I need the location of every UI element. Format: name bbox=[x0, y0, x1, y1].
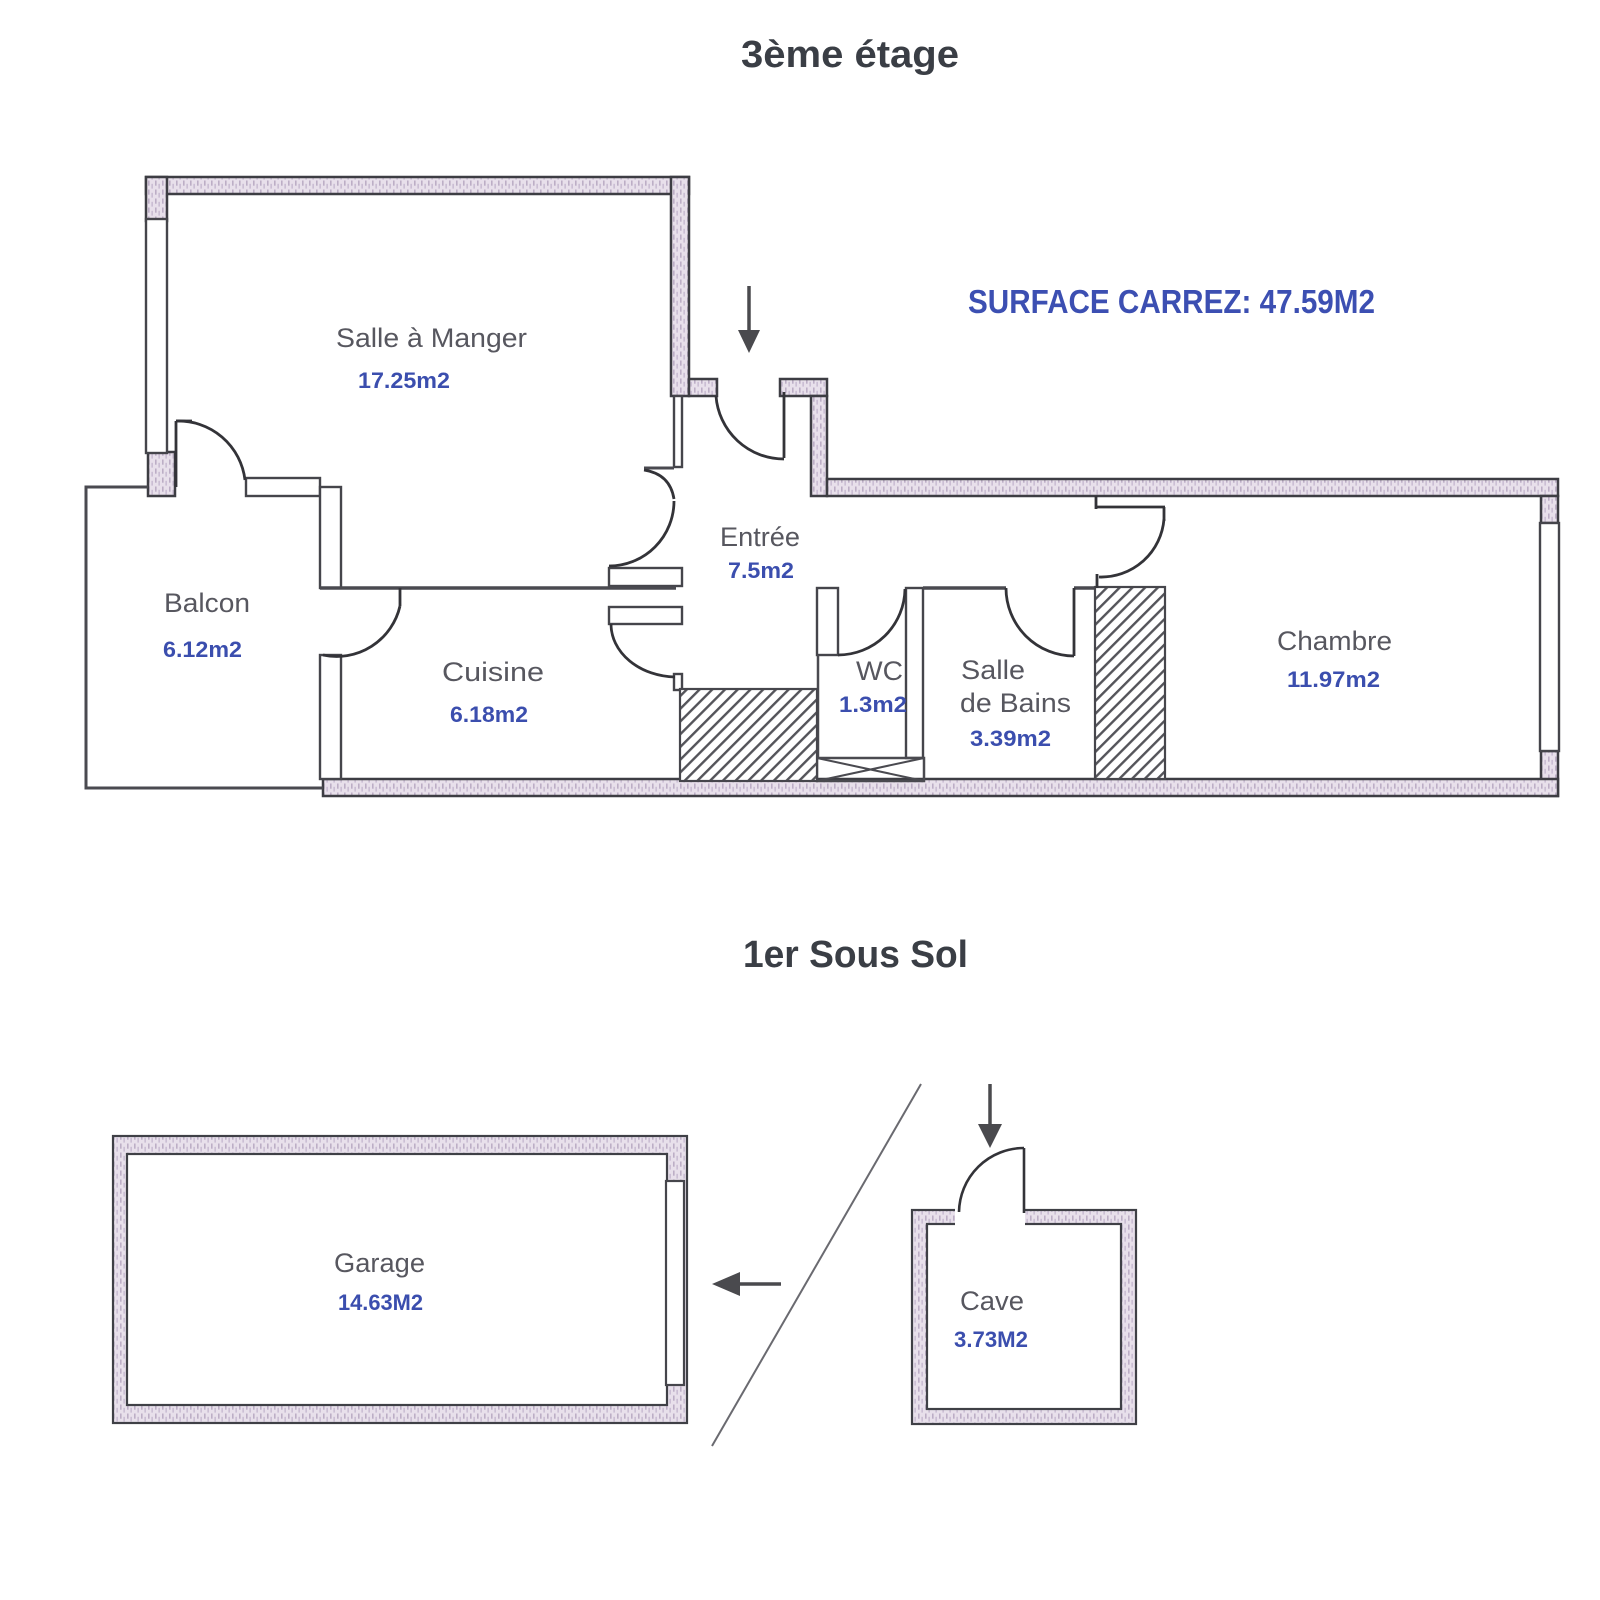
svg-text:de Bains: de Bains bbox=[960, 688, 1071, 718]
svg-text:3.73M2: 3.73M2 bbox=[954, 1327, 1028, 1352]
svg-text:3.39m2: 3.39m2 bbox=[970, 726, 1051, 751]
svg-text:SURFACE CARREZ: 47.59M2: SURFACE CARREZ: 47.59M2 bbox=[968, 283, 1375, 320]
svg-text:14.63M2: 14.63M2 bbox=[338, 1290, 423, 1315]
svg-text:6.18m2: 6.18m2 bbox=[450, 702, 528, 727]
svg-text:Cave: Cave bbox=[960, 1286, 1024, 1316]
svg-text:11.97m2: 11.97m2 bbox=[1287, 667, 1380, 692]
svg-text:Salle: Salle bbox=[961, 655, 1025, 685]
svg-text:1er Sous Sol: 1er Sous Sol bbox=[743, 934, 968, 976]
svg-text:Balcon: Balcon bbox=[164, 588, 250, 618]
svg-text:Chambre: Chambre bbox=[1277, 626, 1392, 656]
svg-text:7.5m2: 7.5m2 bbox=[728, 558, 794, 583]
svg-text:WC: WC bbox=[856, 656, 903, 686]
svg-text:Cuisine: Cuisine bbox=[442, 657, 544, 687]
svg-text:Entrée: Entrée bbox=[720, 522, 800, 552]
svg-text:3ème étage: 3ème étage bbox=[741, 34, 959, 76]
svg-text:1.3m2: 1.3m2 bbox=[839, 692, 907, 717]
svg-text:6.12m2: 6.12m2 bbox=[163, 637, 242, 662]
svg-text:17.25m2: 17.25m2 bbox=[358, 368, 450, 393]
svg-text:Salle à Manger: Salle à Manger bbox=[336, 323, 527, 353]
svg-text:Garage: Garage bbox=[334, 1248, 425, 1278]
